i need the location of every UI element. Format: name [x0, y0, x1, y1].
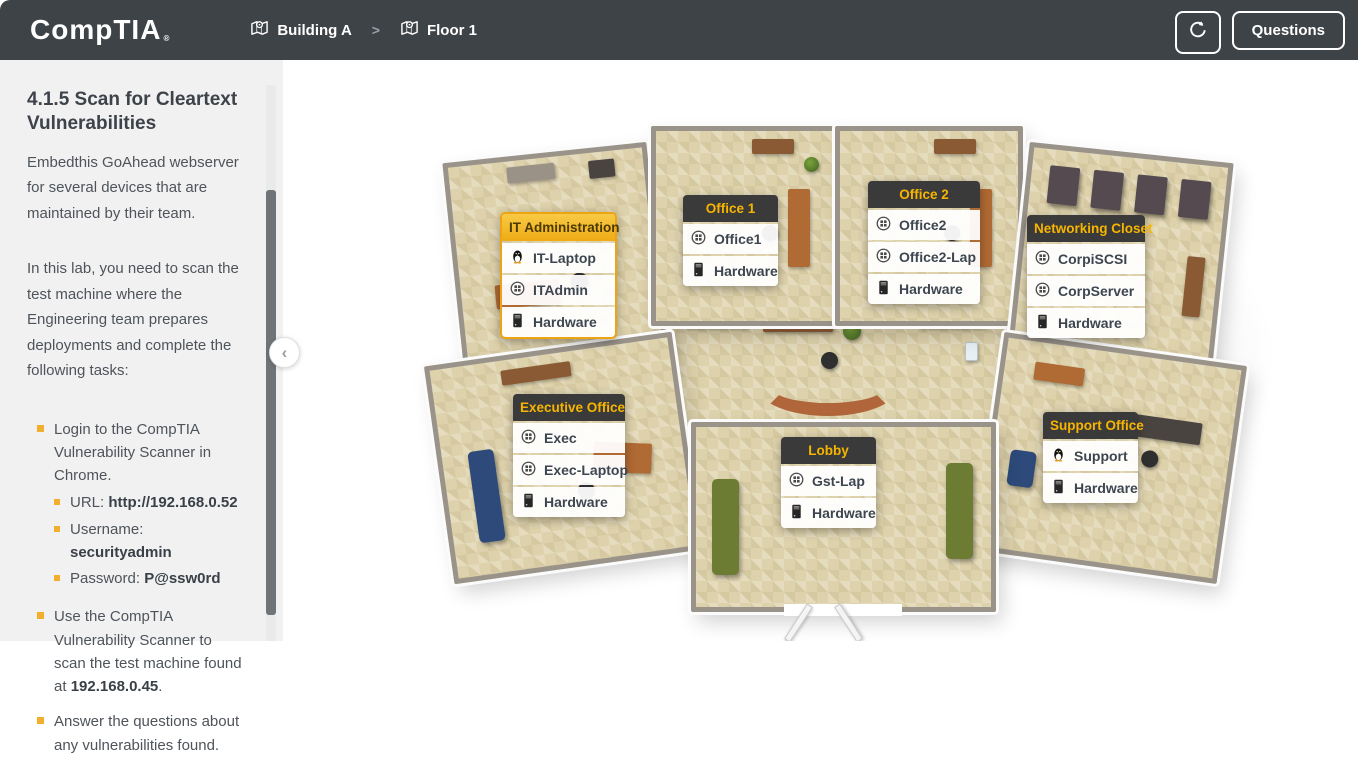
device-label: ITAdmin	[533, 282, 588, 298]
device-hardware[interactable]: Hardware	[1027, 308, 1145, 338]
lab-instructions-panel: 4.1.5 Scan for Cleartext Vulnerabilities…	[0, 60, 283, 641]
subtask-label: Username:	[70, 521, 143, 538]
chair-blue	[1006, 449, 1037, 488]
device-it-laptop[interactable]: IT-Laptop	[502, 243, 615, 273]
bullet-icon	[37, 612, 44, 619]
hardware-icon	[521, 493, 536, 511]
subtask-list: URL: http://192.168.0.52 Username: secur…	[54, 491, 245, 590]
task-item: Answer the questions about any vulnerabi…	[37, 710, 245, 757]
device-gst-lap[interactable]: Gst-Lap	[781, 466, 876, 496]
linux-icon	[510, 249, 525, 267]
callout-support-office: Support Office Support Hardware	[1043, 412, 1138, 503]
server-rack	[1134, 174, 1168, 215]
device-label: CorpiSCSI	[1058, 251, 1127, 267]
callout-office-1: Office 1 Office1 Hardware	[683, 195, 778, 286]
subtask-value: securityadmin	[70, 544, 172, 561]
cabinet	[506, 163, 555, 184]
sidebar-collapse-button[interactable]: ‹	[269, 337, 300, 368]
chevron-right-icon: >	[364, 22, 388, 38]
device-label: Office2-Lap	[899, 249, 976, 265]
device-itadmin[interactable]: ITAdmin	[502, 275, 615, 305]
hardware-icon	[789, 504, 804, 522]
device-exec-laptop[interactable]: Exec-Laptop	[513, 455, 625, 485]
callout-it-administration: IT Administration IT-Laptop ITAdmin Hard…	[500, 212, 617, 339]
cabinet	[934, 139, 976, 154]
device-label: Hardware	[544, 494, 608, 510]
breadcrumb: Building A > Floor 1	[250, 19, 477, 41]
linux-icon	[1051, 447, 1066, 465]
device-corpserver[interactable]: CorpServer	[1027, 276, 1145, 306]
device-label: Hardware	[812, 505, 876, 521]
sidebar-scrollbar-thumb[interactable]	[266, 190, 276, 615]
device-office1[interactable]: Office1	[683, 224, 778, 254]
bullet-icon	[54, 526, 60, 532]
device-hardware[interactable]: Hardware	[868, 274, 980, 304]
windows-icon	[510, 281, 525, 299]
subtask-value: P@ssw0rd	[144, 570, 220, 587]
bullet-icon	[54, 575, 60, 581]
couch	[467, 449, 506, 544]
cabinet	[1181, 256, 1205, 318]
device-label: IT-Laptop	[533, 250, 596, 266]
office-chair	[821, 352, 838, 369]
device-corpiscsi[interactable]: CorpiSCSI	[1027, 244, 1145, 274]
floorplan-viewport: IT Administration IT-Laptop ITAdmin Hard…	[283, 60, 1358, 641]
bullet-icon	[37, 425, 44, 432]
bullet-icon	[37, 717, 44, 724]
room-label: Networking Closet	[1027, 215, 1145, 242]
device-label: Hardware	[714, 263, 778, 279]
server-rack	[1047, 165, 1081, 206]
subtask-value: http://192.168.0.52	[108, 494, 237, 511]
hardware-icon	[876, 280, 891, 298]
chevron-left-icon: ‹	[282, 343, 288, 363]
registered-mark-icon: ®	[163, 34, 170, 43]
windows-icon	[521, 429, 536, 447]
desk	[1033, 362, 1085, 387]
device-label: Office1	[714, 231, 761, 247]
bookshelf	[500, 361, 571, 386]
task-text: Answer the questions about any vulnerabi…	[54, 713, 239, 753]
room-label: IT Administration	[502, 214, 615, 241]
device-hardware[interactable]: Hardware	[502, 307, 615, 337]
hardware-icon	[1035, 314, 1050, 332]
subtask-item: URL: http://192.168.0.52	[54, 491, 245, 514]
desk	[788, 189, 810, 267]
map-icon	[250, 19, 269, 41]
questions-button[interactable]: Questions	[1232, 11, 1345, 50]
windows-icon	[1035, 282, 1050, 300]
device-label: CorpServer	[1058, 283, 1134, 299]
device-label: Hardware	[1074, 480, 1138, 496]
room-label: Support Office	[1043, 412, 1138, 439]
device-label: Hardware	[1058, 315, 1122, 331]
hardware-icon	[1051, 479, 1066, 497]
hardware-icon	[510, 313, 525, 331]
device-label: Office2	[899, 217, 946, 233]
windows-icon	[789, 472, 804, 490]
task-text: .	[158, 678, 162, 695]
breadcrumb-building-a[interactable]: Building A	[250, 19, 351, 41]
hardware-icon	[691, 262, 706, 280]
room-label: Office 2	[868, 181, 980, 208]
refresh-icon	[1187, 19, 1209, 46]
task-text: Login to the CompTIA Vulnerability Scann…	[54, 421, 211, 485]
bullet-icon	[54, 499, 60, 505]
windows-icon	[876, 216, 891, 234]
breadcrumb-floor-1[interactable]: Floor 1	[400, 19, 477, 41]
questions-button-label: Questions	[1252, 22, 1325, 39]
windows-icon	[521, 461, 536, 479]
windows-icon	[1035, 250, 1050, 268]
device-label: Support	[1074, 448, 1128, 464]
device-office2[interactable]: Office2	[868, 210, 980, 240]
top-bar: CompTIA ® Building A > Floor 1 Questions	[0, 0, 1358, 60]
lab-intro-paragraph: Embedthis GoAhead webserver for several …	[27, 150, 245, 227]
device-office2-lap[interactable]: Office2-Lap	[868, 242, 980, 272]
lab-title: 4.1.5 Scan for Cleartext Vulnerabilities	[27, 88, 245, 136]
room-label: Office 1	[683, 195, 778, 222]
subtask-label: Password:	[70, 570, 144, 587]
room-label: Lobby	[781, 437, 876, 464]
lab-body-paragraph: In this lab, you need to scan the test m…	[27, 256, 245, 384]
couch	[946, 463, 973, 559]
device-hardware[interactable]: Hardware	[781, 498, 876, 528]
breadcrumb-label: Floor 1	[427, 22, 477, 39]
subtask-item: Password: P@ssw0rd	[54, 567, 245, 590]
callout-executive-office: Executive Office Exec Exec-Laptop Hardwa…	[513, 394, 625, 517]
breadcrumb-label: Building A	[277, 22, 351, 39]
couch	[712, 479, 739, 575]
task-item: Login to the CompTIA Vulnerability Scann…	[37, 418, 245, 594]
cabinet	[752, 139, 794, 154]
server-rack	[1090, 170, 1124, 211]
device-hardware[interactable]: Hardware	[1043, 473, 1138, 503]
potted-plant	[804, 157, 819, 172]
server-rack	[1178, 179, 1212, 220]
device-support[interactable]: Support	[1043, 441, 1138, 471]
windows-icon	[691, 230, 706, 248]
callout-lobby: Lobby Gst-Lap Hardware	[781, 437, 876, 528]
water-cooler	[965, 342, 978, 361]
subtask-label: URL:	[70, 494, 108, 511]
comptia-logo: CompTIA ®	[30, 14, 170, 46]
subtask-item: Username: securityadmin	[54, 518, 245, 565]
device-hardware[interactable]: Hardware	[513, 487, 625, 517]
room-label: Executive Office	[513, 394, 625, 421]
device-label: Hardware	[899, 281, 963, 297]
task-item: Use the CompTIA Vulnerability Scanner to…	[37, 605, 245, 698]
map-icon	[400, 19, 419, 41]
device-label: Exec	[544, 430, 577, 446]
device-label: Gst-Lap	[812, 473, 865, 489]
device-label: Hardware	[533, 314, 597, 330]
device-hardware[interactable]: Hardware	[683, 256, 778, 286]
windows-icon	[876, 248, 891, 266]
logo-text: CompTIA	[30, 14, 161, 46]
device-exec[interactable]: Exec	[513, 423, 625, 453]
task-list: Login to the CompTIA Vulnerability Scann…	[27, 418, 245, 757]
refresh-button[interactable]	[1175, 11, 1221, 54]
callout-office-2: Office 2 Office2 Office2-Lap Hardware	[868, 181, 980, 304]
wall-picture	[588, 158, 616, 179]
device-label: Exec-Laptop	[544, 462, 628, 478]
office-chair	[1140, 449, 1159, 468]
task-value: 192.168.0.45	[71, 678, 159, 695]
callout-networking-closet: Networking Closet CorpiSCSI CorpServer H…	[1027, 215, 1145, 338]
